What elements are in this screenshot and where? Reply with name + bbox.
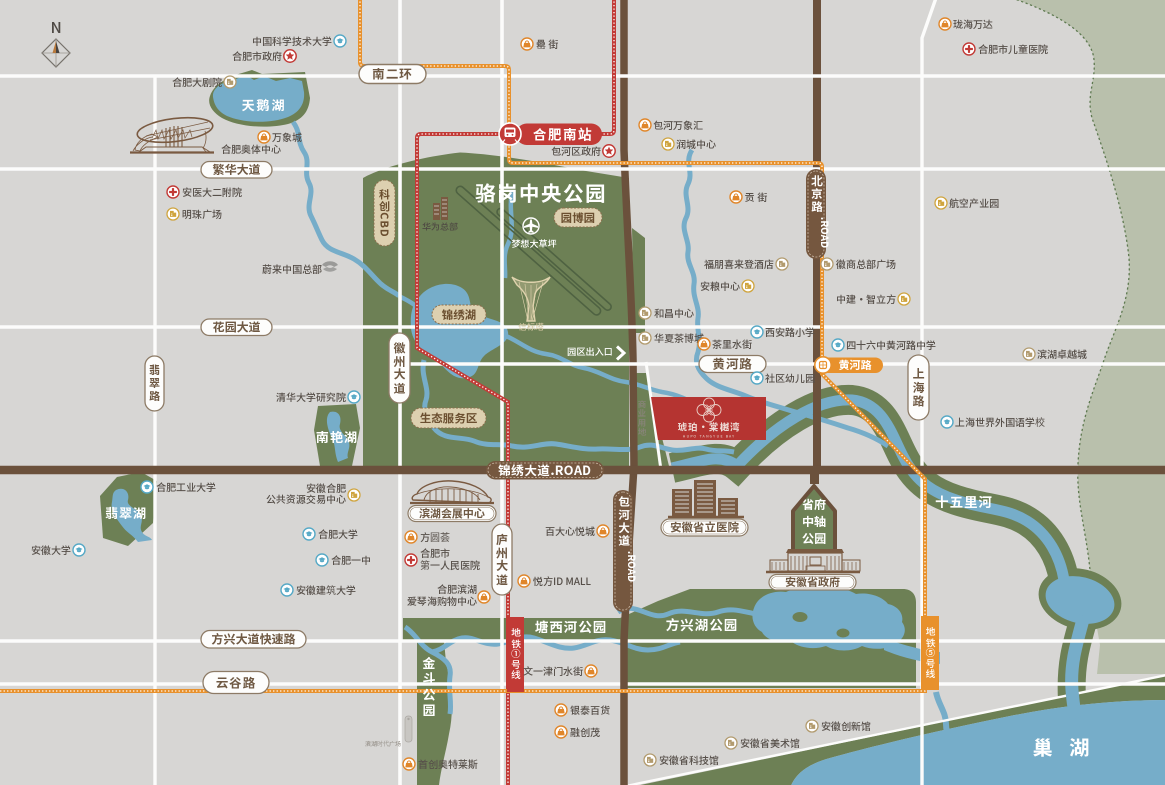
svg-text:合肥大学: 合肥大学 [318, 526, 358, 541]
svg-text:黄河路: 黄河路 [712, 354, 753, 373]
svg-text:茶里水街: 茶里水街 [712, 336, 752, 351]
svg-text:锦绣大道.ROAD: 锦绣大道.ROAD [498, 460, 591, 479]
svg-text:百大心悦城: 百大心悦城 [545, 523, 595, 538]
svg-text:第一人民医院: 第一人民医院 [420, 557, 480, 572]
svg-text:悦方ID MALL: 悦方ID MALL [533, 573, 591, 588]
svg-text:地铁①号线: 地铁①号线 [509, 628, 523, 681]
svg-text:安徽大学: 安徽大学 [31, 542, 71, 557]
svg-text:安徽省科技馆: 安徽省科技馆 [659, 752, 719, 767]
svg-text:省府: 省府 [802, 496, 826, 513]
svg-text:首创奥特莱斯: 首创奥特莱斯 [418, 756, 478, 771]
svg-text:融创茂: 融创茂 [570, 724, 600, 739]
svg-text:包河万象汇: 包河万象汇 [653, 117, 703, 132]
svg-text:中国科学技术大学: 中国科学技术大学 [252, 33, 332, 48]
svg-text:文一津门水街: 文一津门水街 [523, 663, 583, 678]
svg-text:安粮中心: 安粮中心 [700, 278, 740, 293]
svg-text:滨湖卓越城: 滨湖卓越城 [1037, 346, 1087, 361]
svg-text:中轴: 中轴 [802, 513, 826, 530]
svg-text:.ROAD: .ROAD [818, 217, 833, 248]
svg-text:方圆荟: 方圆荟 [420, 529, 450, 544]
svg-text:路: 路 [811, 199, 823, 215]
svg-text:科创CBD: 科创CBD [377, 188, 393, 238]
svg-text:银泰百货: 银泰百货 [570, 702, 611, 717]
svg-text:合肥奥体中心: 合肥奥体中心 [221, 141, 281, 156]
svg-text:道: 道 [618, 533, 630, 549]
svg-text:清华大学研究院: 清华大学研究院 [276, 389, 346, 404]
svg-text:南艳湖: 南艳湖 [316, 427, 358, 446]
svg-text:四十六中黄河路中学: 四十六中黄河路中学 [846, 337, 936, 352]
svg-text:公园: 公园 [802, 530, 826, 547]
svg-text:公共资源交易中心: 公共资源交易中心 [266, 491, 346, 506]
svg-text:巢 湖: 巢 湖 [1033, 732, 1096, 761]
svg-text:花园大道: 花园大道 [212, 319, 260, 336]
svg-text:云谷路: 云谷路 [216, 673, 257, 692]
svg-text:安徽省政府: 安徽省政府 [785, 574, 841, 590]
svg-text:.ROAD: .ROAD [625, 551, 640, 582]
svg-text:安徽创新馆: 安徽创新馆 [821, 718, 871, 733]
svg-text:安徽省立医院: 安徽省立医院 [670, 520, 739, 536]
svg-text:华夏茶博城: 华夏茶博城 [653, 330, 704, 345]
svg-text:上海路: 上海路 [910, 367, 927, 408]
svg-text:徽商总部广场: 徽商总部广场 [836, 256, 897, 271]
svg-text:地铁⑤号线: 地铁⑤号线 [924, 627, 938, 680]
svg-text:中建·智立方: 中建·智立方 [836, 291, 896, 306]
svg-text:生态服务区: 生态服务区 [420, 411, 478, 427]
svg-text:翡翠湖: 翡翠湖 [105, 503, 147, 522]
svg-text:滨湖会展中心: 滨湖会展中心 [419, 506, 485, 522]
svg-text:上海世界外国语学校: 上海世界外国语学校 [955, 414, 1045, 429]
svg-text:华为总部: 华为总部 [422, 220, 458, 233]
svg-text:和昌中心: 和昌中心 [653, 305, 694, 320]
svg-text:明珠广场: 明珠广场 [182, 206, 223, 221]
svg-text:方兴湖公园: 方兴湖公园 [666, 614, 739, 634]
svg-text:庐州大道: 庐州大道 [494, 533, 511, 587]
svg-text:安徽建筑大学: 安徽建筑大学 [296, 582, 356, 597]
svg-text:合肥市政府: 合肥市政府 [232, 48, 282, 63]
svg-text:爱琴海购物中心: 爱琴海购物中心 [407, 593, 477, 608]
svg-text:合肥大剧院: 合肥大剧院 [172, 74, 222, 89]
svg-text:信标塔: 信标塔 [518, 321, 544, 333]
svg-text:润城中心: 润城中心 [676, 136, 716, 151]
svg-text:合肥工业大学: 合肥工业大学 [156, 479, 216, 494]
svg-text:商业用地: 商业用地 [636, 399, 648, 437]
svg-text:珑海万达: 珑海万达 [953, 16, 993, 31]
svg-text:航空产业园: 航空产业园 [949, 195, 999, 210]
svg-text:骆岗中央公园: 骆岗中央公园 [475, 177, 607, 207]
svg-text:西安路小学: 西安路小学 [765, 324, 815, 339]
svg-text:琥珀·棠樾湾: 琥珀·棠樾湾 [676, 420, 740, 434]
svg-text:锦绣湖: 锦绣湖 [442, 307, 477, 323]
svg-text:徽州大道: 徽州大道 [391, 341, 408, 395]
svg-text:方兴大道快速路: 方兴大道快速路 [210, 631, 295, 648]
svg-text:天鹅湖: 天鹅湖 [241, 95, 286, 114]
svg-text:塘西河公园: 塘西河公园 [535, 616, 608, 636]
svg-text:园博园: 园博园 [561, 210, 596, 226]
svg-text:金斗公园: 金斗公园 [420, 656, 439, 720]
svg-text:合肥市儿童医院: 合肥市儿童医院 [978, 41, 1048, 56]
svg-text:包河区政府: 包河区政府 [551, 143, 601, 158]
svg-text:贡 街: 贡 街 [745, 189, 767, 204]
svg-text:福朋喜来登酒店: 福朋喜来登酒店 [704, 256, 774, 271]
svg-text:十五里河: 十五里河 [935, 491, 993, 511]
svg-text:HUPO TANGYUE BAY: HUPO TANGYUE BAY [683, 435, 736, 440]
svg-text:南二环: 南二环 [372, 64, 413, 83]
svg-text:N: N [50, 17, 61, 38]
svg-text:合肥一中: 合肥一中 [331, 552, 371, 567]
svg-text:安徽省美术馆: 安徽省美术馆 [740, 735, 800, 750]
svg-text:园区出入口: 园区出入口 [567, 344, 613, 358]
svg-text:繁华大道: 繁华大道 [211, 161, 260, 178]
svg-text:蔚来中国总部: 蔚来中国总部 [262, 261, 323, 276]
svg-text:黄河路: 黄河路 [839, 357, 873, 373]
svg-text:梦想大草坪: 梦想大草坪 [511, 237, 556, 250]
svg-text:罍 街: 罍 街 [536, 36, 558, 51]
svg-text:社区幼儿园: 社区幼儿园 [765, 370, 815, 385]
svg-text:合肥南站: 合肥南站 [533, 124, 593, 144]
svg-text:翡翠路: 翡翠路 [147, 365, 163, 403]
svg-text:滨湖时代广场: 滨湖时代广场 [365, 739, 401, 748]
svg-text:安医大二附院: 安医大二附院 [182, 184, 242, 199]
